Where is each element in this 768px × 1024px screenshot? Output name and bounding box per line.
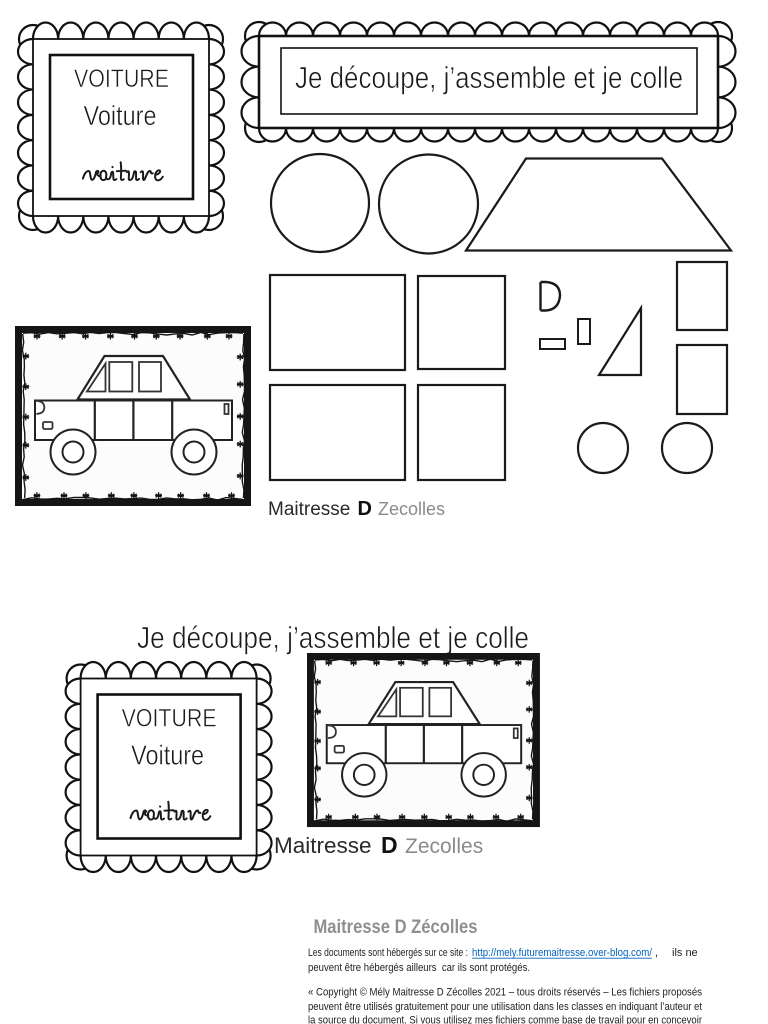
svg-text:ils ne: ils ne [672,947,698,959]
svg-text:D: D [381,832,398,858]
svg-text:VOITURE: VOITURE [122,705,217,733]
svg-text:D: D [358,498,372,520]
svg-text:Maitresse: Maitresse [268,499,350,520]
svg-text:Zecolles: Zecolles [405,835,483,858]
svg-text:Je découpe, j’assemble et je c: Je découpe, j’assemble et je colle [137,620,529,655]
svg-text:Maitresse D Zécolles: Maitresse D Zécolles [314,916,478,938]
svg-text:la source du document. Si vous: la source du document. Si vous utilisez … [308,1014,702,1024]
svg-text:« Copyright © Mély Maitresse D: « Copyright © Mély Maitresse D Zécolles … [308,986,702,998]
svg-text:Voiture: Voiture [131,740,204,771]
svg-text:Les documents sont hébergés su: Les documents sont hébergés sur ce site … [308,947,468,959]
svg-text:peuvent être utilisés gratuite: peuvent être utilisés gratuitement pour … [308,1001,702,1013]
svg-text:,: , [655,947,658,959]
svg-text:VOITURE: VOITURE [74,65,169,93]
svg-text:Je découpe, j’assemble et je c: Je découpe, j’assemble et je colle [295,60,683,95]
svg-text:peuvent être hébergés ailleurs: peuvent être hébergés ailleurs car ils s… [308,962,530,974]
svg-text:Voiture: Voiture [84,100,157,131]
svg-text:Maitresse: Maitresse [274,833,372,858]
svg-text:http://mely.futuremaitresse.ov: http://mely.futuremaitresse.over-blog.co… [472,947,653,959]
svg-text:Zecolles: Zecolles [378,499,445,519]
